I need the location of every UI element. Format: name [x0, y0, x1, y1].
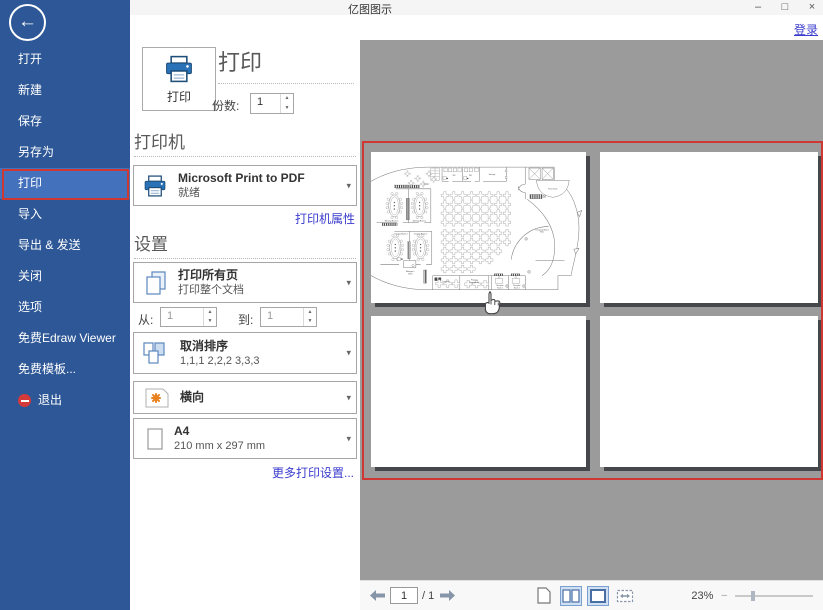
print-all-pages-icon: [144, 270, 168, 296]
copies-stepper[interactable]: 1: [250, 93, 294, 114]
preview-page-3[interactable]: [371, 316, 586, 467]
sidebar-item-save-as[interactable]: 另存为: [0, 137, 130, 168]
two-page-view-button[interactable]: [560, 586, 582, 606]
divider: [218, 83, 354, 84]
sidebar-item-open[interactable]: 打开: [0, 44, 130, 75]
divider: [134, 258, 356, 259]
printer-icon: [163, 54, 195, 84]
chevron-down-icon: [346, 277, 351, 288]
orientation-title: 横向: [180, 390, 204, 405]
single-page-view-button[interactable]: [533, 586, 555, 606]
zoom-percent-label: 23%: [691, 590, 713, 602]
collate-subtitle: 1,1,1 2,2,2 3,3,3: [180, 354, 260, 368]
copies-up-icon[interactable]: [281, 94, 293, 104]
page-border-icon: [590, 589, 606, 603]
statusbar: / 1: [360, 580, 823, 610]
to-up-icon[interactable]: [304, 308, 316, 317]
next-page-button[interactable]: [438, 588, 456, 604]
preview-column: 登录: [360, 15, 823, 610]
sidebar-item-close[interactable]: 关闭: [0, 261, 130, 292]
from-page-value: 1: [161, 308, 203, 326]
print-settings-panel: 打印 打印 份数: 1 打印机 Microsoft Print to PDF: [130, 15, 360, 610]
print-button[interactable]: 打印: [142, 47, 216, 111]
sidebar-item-free-templates[interactable]: 免费模板...: [0, 354, 130, 385]
sidebar-item-save[interactable]: 保存: [0, 106, 130, 137]
zoom-out-icon[interactable]: –: [721, 590, 727, 601]
back-arrow-icon: ←: [18, 12, 37, 31]
paper-a4-icon: [146, 427, 164, 451]
sidebar-item-exit[interactable]: 退出: [0, 385, 130, 416]
back-button[interactable]: ←: [9, 4, 46, 41]
close-button[interactable]: ×: [805, 0, 819, 15]
print-preview-area[interactable]: [360, 40, 823, 580]
from-label: 从:: [138, 311, 153, 328]
page-range-select[interactable]: 打印所有页 打印整个文档: [133, 262, 357, 303]
printer-icon: [142, 174, 168, 198]
page-range-title: 打印所有页: [178, 268, 244, 283]
printer-status: 就绪: [178, 186, 305, 200]
fit-to-window-button[interactable]: [614, 586, 636, 606]
printer-select[interactable]: Microsoft Print to PDF 就绪: [133, 165, 357, 206]
preview-page-2[interactable]: [600, 152, 818, 303]
chevron-down-icon: [346, 180, 351, 191]
preview-header: 登录: [360, 15, 823, 40]
to-down-icon[interactable]: [304, 317, 316, 326]
print-button-label: 打印: [167, 88, 191, 105]
sidebar-item-import[interactable]: 导入: [0, 199, 130, 230]
exit-label: 退出: [38, 385, 62, 416]
landscape-icon: [144, 387, 170, 409]
minimize-button[interactable]: –: [751, 0, 765, 15]
page-range-subtitle: 打印整个文档: [178, 283, 244, 297]
paper-subtitle: 210 mm x 297 mm: [174, 439, 265, 453]
whole-page-view-button[interactable]: [587, 586, 609, 606]
chevron-down-icon: [346, 433, 351, 444]
print-heading: 打印: [218, 45, 262, 77]
hand-cursor-icon: [480, 290, 504, 316]
collate-select[interactable]: 取消排序 1,1,1 2,2,2 3,3,3: [133, 332, 357, 374]
from-up-icon[interactable]: [204, 308, 216, 317]
sidebar-item-export-send[interactable]: 导出 & 发送: [0, 230, 130, 261]
chevron-down-icon: [346, 392, 351, 403]
printer-section-heading: 打印机: [134, 128, 185, 153]
collate-title: 取消排序: [180, 339, 260, 354]
chevron-down-icon: [346, 348, 351, 359]
zoom-slider[interactable]: [735, 595, 813, 597]
to-label: 到:: [238, 311, 253, 328]
copies-label: 份数:: [212, 97, 239, 114]
sidebar-item-new[interactable]: 新建: [0, 75, 130, 106]
printer-properties-link[interactable]: 打印机属性: [295, 210, 355, 227]
from-page-stepper[interactable]: 1: [160, 307, 217, 327]
preview-page-4[interactable]: [600, 316, 818, 467]
main-area: 亿图图示 – □ × 打印 打印 份数: 1 打印: [130, 0, 823, 610]
sidebar-item-options[interactable]: 选项: [0, 292, 130, 323]
page-number-input[interactable]: [390, 587, 418, 604]
copies-value: 1: [251, 94, 280, 113]
previous-page-button[interactable]: [368, 588, 386, 604]
zoom-slider-thumb[interactable]: [751, 591, 755, 601]
paper-size-select[interactable]: A4 210 mm x 297 mm: [133, 418, 357, 459]
maximize-button[interactable]: □: [778, 0, 792, 15]
page-total-label: / 1: [422, 590, 434, 602]
printer-name: Microsoft Print to PDF: [178, 171, 305, 186]
two-pages-icon: [562, 589, 580, 603]
login-link[interactable]: 登录: [794, 21, 818, 38]
page-icon: [537, 587, 551, 604]
more-print-settings-link[interactable]: 更多打印设置...: [272, 464, 354, 481]
collate-icon: [142, 339, 170, 367]
fit-width-icon: [616, 589, 634, 603]
paper-title: A4: [174, 424, 265, 439]
divider: [134, 156, 356, 157]
to-page-value: 1: [261, 308, 303, 326]
orientation-select[interactable]: 横向: [133, 381, 357, 414]
backstage-sidebar: ← 打开 新建 保存 另存为 打印 导入 导出 & 发送 关闭 选项 免费Edr…: [0, 0, 130, 610]
settings-section-heading: 设置: [134, 230, 168, 255]
titlebar: 亿图图示 – □ ×: [130, 0, 823, 15]
sidebar-item-free-viewer[interactable]: 免费Edraw Viewer: [0, 323, 130, 354]
exit-icon: [18, 394, 31, 407]
to-page-stepper[interactable]: 1: [260, 307, 317, 327]
copies-down-icon[interactable]: [281, 104, 293, 114]
edraw-print-backstage: ← 打开 新建 保存 另存为 打印 导入 导出 & 发送 关闭 选项 免费Edr…: [0, 0, 823, 610]
sidebar-item-print[interactable]: 打印: [0, 168, 130, 199]
preview-page-1[interactable]: [371, 152, 586, 303]
from-down-icon[interactable]: [204, 317, 216, 326]
